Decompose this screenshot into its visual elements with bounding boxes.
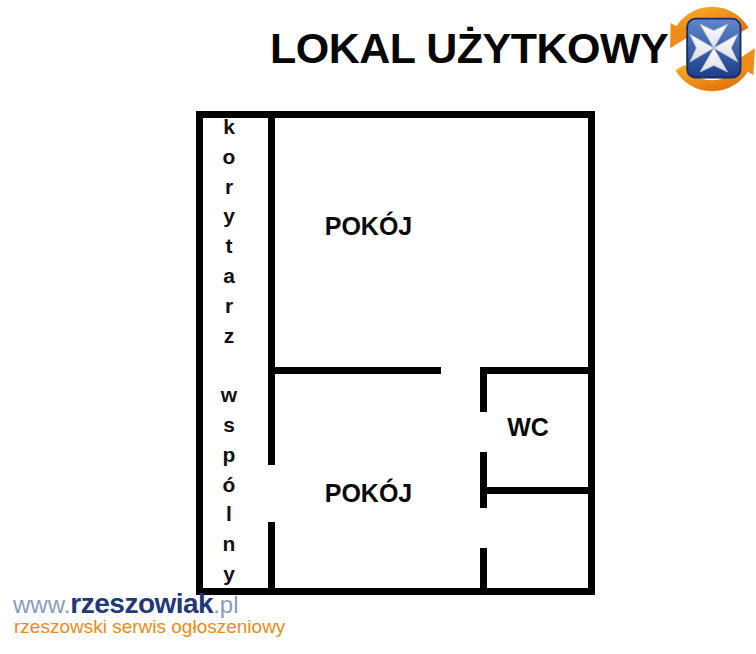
floor-plan: k o r y t a r z w s p ó l n y POKÓJ POKÓ… bbox=[0, 0, 756, 654]
corridor-label: k o r y t a r z w s p ó l n y bbox=[196, 112, 262, 589]
wall-outer-right bbox=[588, 111, 595, 595]
wall-corridor-lower bbox=[268, 522, 275, 595]
watermark-www: www. bbox=[13, 591, 70, 618]
wc-label: WC bbox=[487, 415, 569, 440]
wall-outer-bottom bbox=[196, 588, 595, 595]
wall-wc-bottom bbox=[480, 487, 595, 494]
watermark: www.rzeszowiak.pl bbox=[13, 590, 239, 618]
wall-wc-top bbox=[480, 367, 595, 374]
page-title: LOKAL UŻYTKOWY bbox=[270, 27, 668, 70]
wall-wc-left-lower bbox=[480, 548, 487, 595]
room-label-top: POKÓJ bbox=[296, 214, 441, 239]
wall-wc-left-upper bbox=[480, 367, 487, 412]
watermark-name: rzeszowiak bbox=[70, 588, 213, 619]
wall-room-divider bbox=[268, 367, 441, 374]
watermark-tagline: rzeszowski serwis ogłoszeniowy bbox=[14, 617, 285, 636]
rzeszowiak-logo-icon bbox=[666, 3, 756, 95]
wall-corridor-upper bbox=[268, 111, 275, 465]
room-label-bottom: POKÓJ bbox=[296, 481, 441, 506]
watermark-tld: .pl bbox=[213, 591, 238, 618]
listing-image: LOKAL UŻYTKOWY bbox=[0, 0, 756, 654]
wall-wc-left-mid bbox=[480, 452, 487, 508]
